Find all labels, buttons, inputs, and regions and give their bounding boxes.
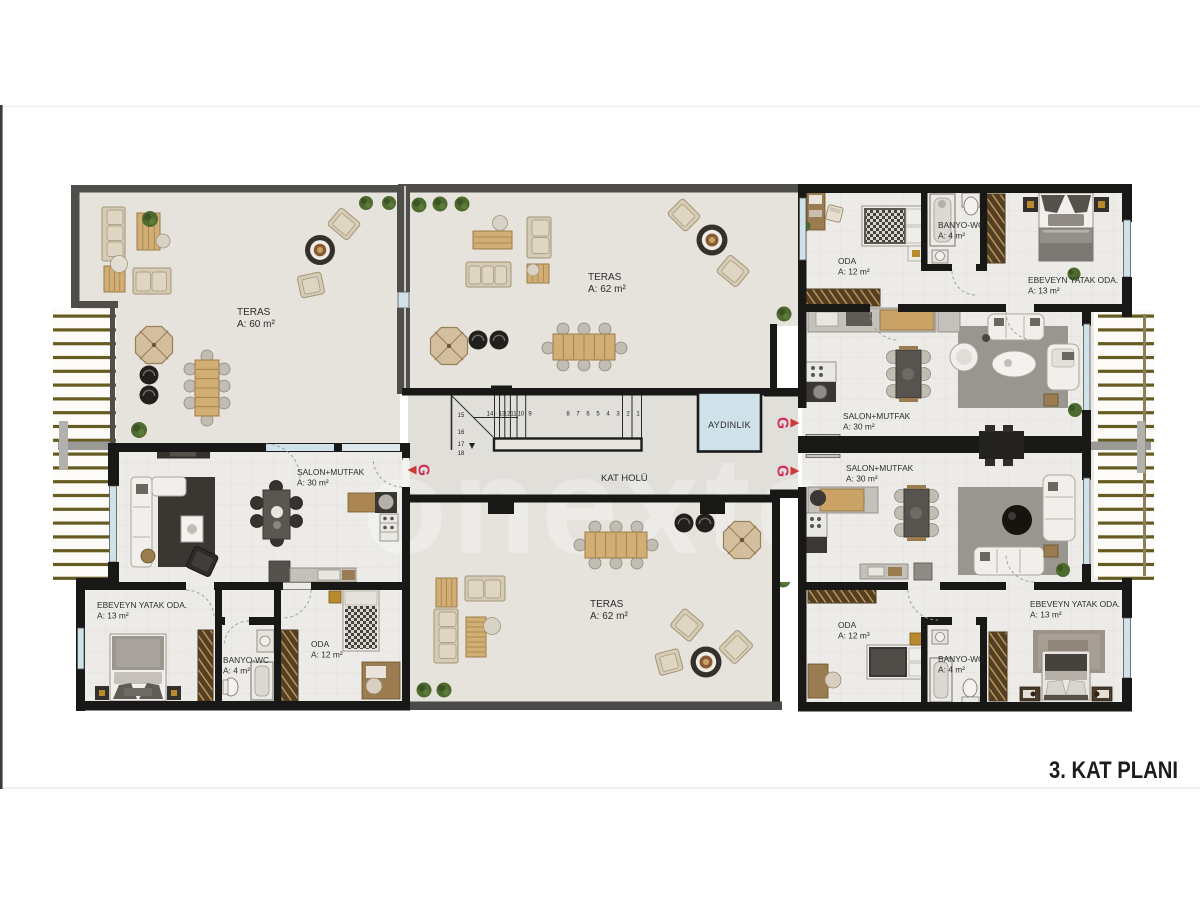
svg-text:SALON+MUTFAK: SALON+MUTFAK: [297, 467, 365, 477]
svg-text:10: 10: [518, 412, 525, 418]
svg-text:A: 12 m²: A: 12 m²: [311, 650, 343, 660]
svg-text:15: 15: [458, 413, 465, 419]
svg-text:A: 12 m³: A: 12 m³: [838, 631, 870, 641]
svg-text:17: 17: [458, 442, 465, 448]
svg-text:18: 18: [458, 451, 465, 457]
svg-text:TERAS: TERAS: [590, 599, 624, 610]
svg-text:KAT HOLÜ: KAT HOLÜ: [601, 473, 648, 484]
svg-text:TERAS: TERAS: [237, 307, 271, 318]
svg-text:SALON+MUTFAK: SALON+MUTFAK: [843, 411, 911, 421]
svg-text:3. KAT PLANI: 3. KAT PLANI: [1049, 757, 1178, 784]
svg-text:G: G: [774, 465, 791, 477]
svg-text:SALON+MUTFAK: SALON+MUTFAK: [846, 463, 914, 473]
svg-text:A: 4 m²: A: 4 m²: [223, 666, 250, 676]
svg-text:ODA: ODA: [838, 256, 857, 266]
svg-text:TERAS: TERAS: [588, 272, 622, 283]
svg-text:11: 11: [510, 412, 517, 418]
svg-text:A: 30 m²: A: 30 m²: [297, 478, 329, 488]
svg-text:A: 13 m²: A: 13 m²: [1030, 610, 1062, 620]
svg-text:A: 62 m²: A: 62 m²: [588, 284, 626, 295]
svg-text:G: G: [774, 417, 791, 429]
svg-text:A: 30 m²: A: 30 m²: [846, 474, 878, 484]
svg-text:A: 13 m²: A: 13 m²: [1028, 286, 1060, 296]
svg-text:EBEVEYN YATAK ODA.: EBEVEYN YATAK ODA.: [97, 600, 187, 610]
svg-text:16: 16: [458, 430, 465, 436]
svg-text:A: 13 m²: A: 13 m²: [97, 611, 129, 621]
svg-text:A: 4 m²: A: 4 m²: [938, 231, 965, 241]
svg-text:A: 4 m²: A: 4 m²: [938, 665, 965, 675]
svg-text:BANYO-WC: BANYO-WC: [938, 220, 984, 230]
svg-text:ODA: ODA: [838, 620, 857, 630]
svg-text:AYDINLIK: AYDINLIK: [708, 420, 751, 430]
svg-text:A: 62 m²: A: 62 m²: [590, 611, 628, 622]
svg-text:A: 12 m²: A: 12 m²: [838, 267, 870, 277]
svg-text:G: G: [415, 464, 432, 476]
svg-text:BANYO-WC: BANYO-WC: [938, 654, 984, 664]
svg-text:BANYO-WC: BANYO-WC: [223, 655, 269, 665]
svg-text:A: 30 m²: A: 30 m²: [843, 422, 875, 432]
svg-text:A: 60 m²: A: 60 m²: [237, 319, 275, 330]
svg-text:EBEVEYN YATAK ODA.: EBEVEYN YATAK ODA.: [1028, 275, 1118, 285]
svg-text:EBEVEYN YATAK ODA.: EBEVEYN YATAK ODA.: [1030, 599, 1120, 609]
svg-text:ODA: ODA: [311, 639, 330, 649]
